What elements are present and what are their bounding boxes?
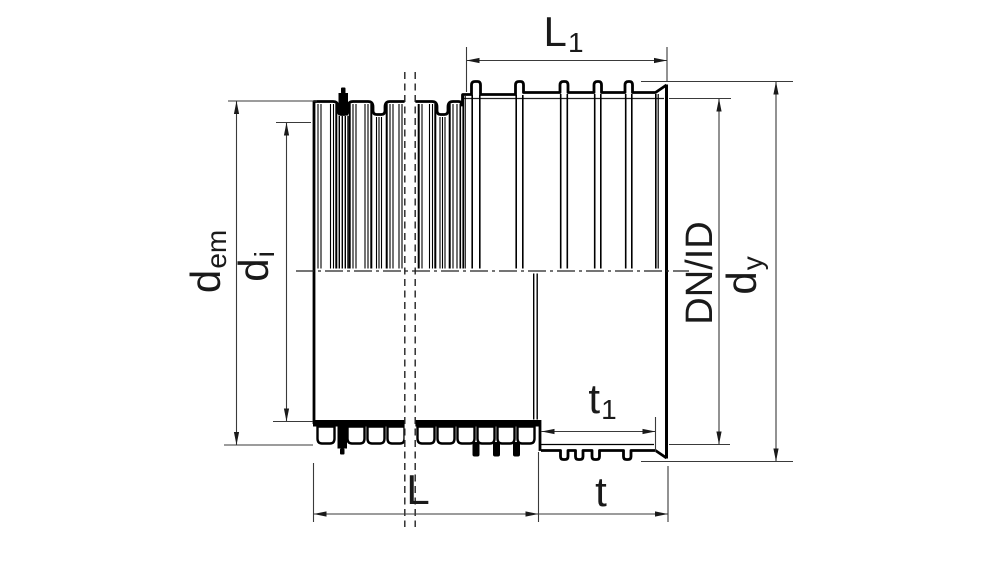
- break-lines: [405, 70, 416, 528]
- label-L1: L1: [544, 11, 583, 53]
- label-dy: dy: [721, 257, 763, 294]
- technical-drawing: L1 dem di DN/ID dy t1 L t: [0, 0, 992, 567]
- label-L: L: [406, 469, 429, 511]
- label-dnid: DN/ID: [681, 221, 719, 324]
- label-t1: t1: [588, 378, 615, 420]
- dim-t1: [542, 417, 656, 452]
- dim-di: [273, 123, 313, 422]
- pipe-section-drawing: [0, 0, 992, 567]
- corrugation-section-cups: [318, 427, 535, 444]
- corrugation-surface-lines: [318, 94, 658, 269]
- label-dem: dem: [185, 231, 227, 293]
- label-di: di: [233, 252, 275, 282]
- label-t: t: [595, 471, 607, 513]
- socket-step-interior-lines: [534, 274, 538, 420]
